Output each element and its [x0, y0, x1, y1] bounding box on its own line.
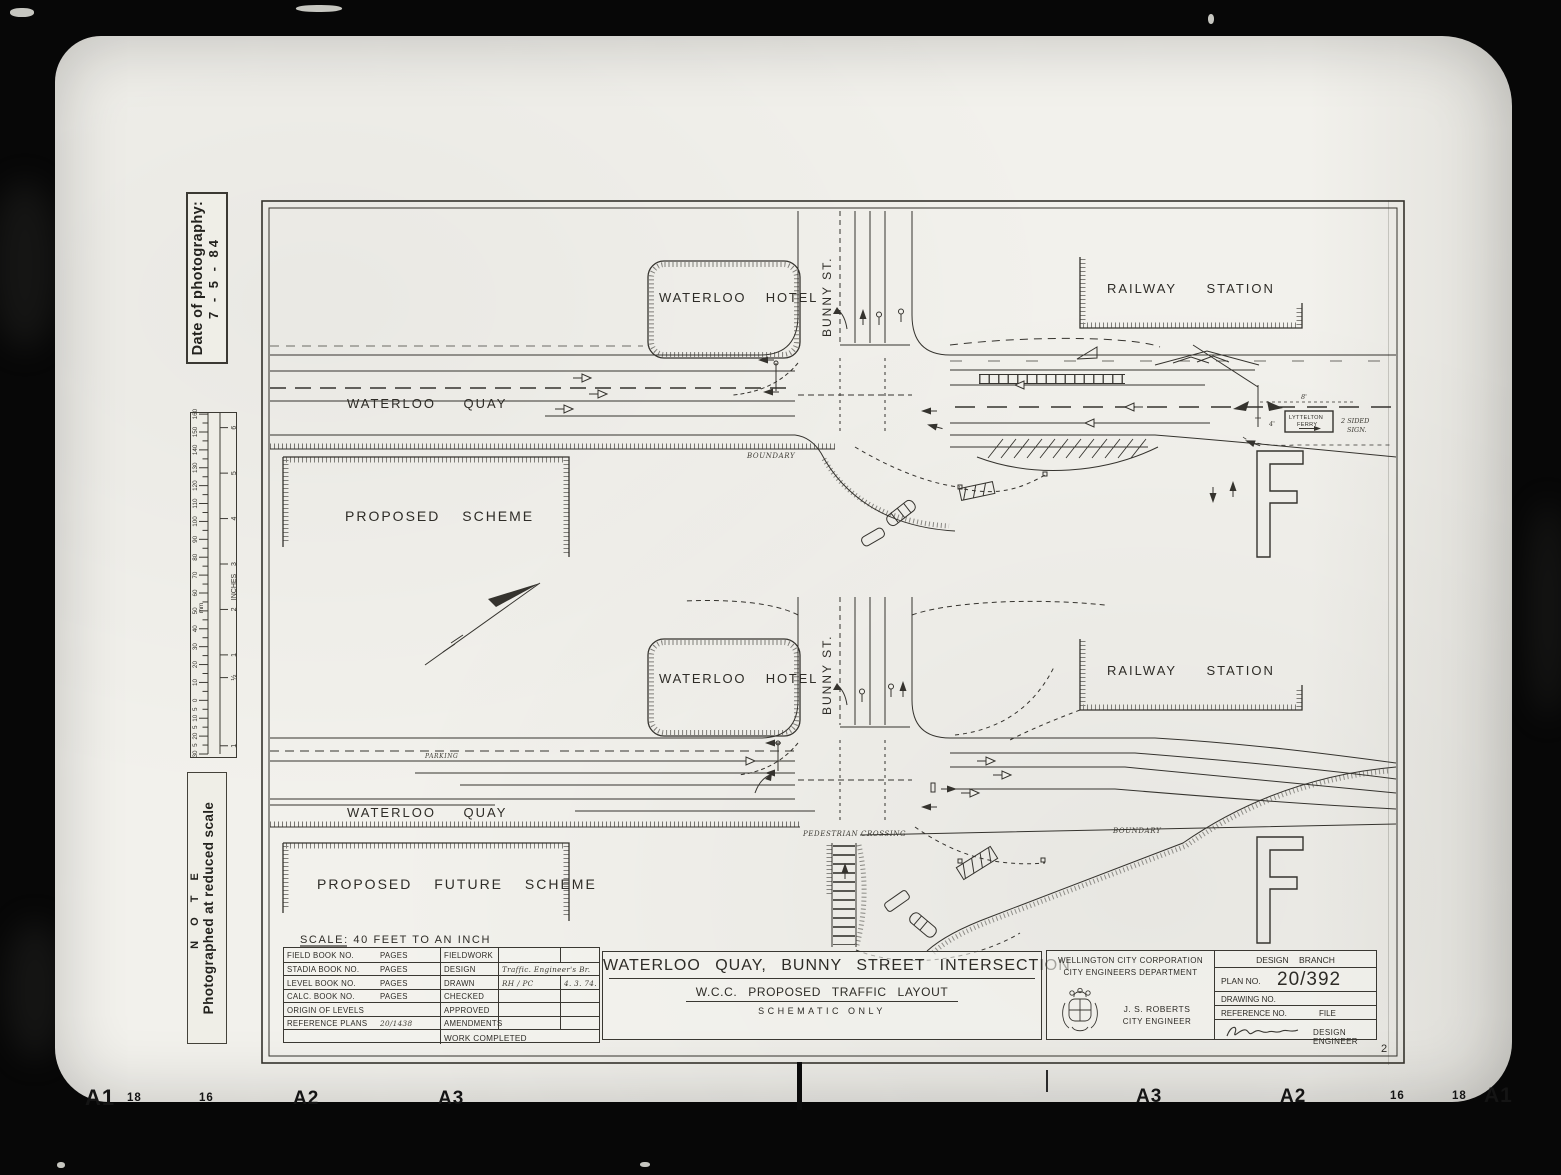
pages-label: PAGES: [380, 965, 408, 974]
cell-blank: [284, 1030, 441, 1044]
railway-station-label-bottom: RAILWAY STATION: [1107, 663, 1275, 678]
reduced-scale-note-stamp: N O T E Photographed at reduced scale: [187, 772, 227, 1044]
ruler-label: INCHES: [231, 573, 238, 600]
hotel-label-top: WATERLOO HOTEL: [659, 290, 818, 305]
cell-value: RH / PC: [499, 976, 561, 989]
work-completed-cell: WORK COMPLETED: [441, 1030, 599, 1044]
cell-role: FIELDWORK: [441, 948, 499, 962]
dimension-4ft: 4': [1268, 420, 1275, 428]
ruler-label: 2: [231, 607, 238, 611]
film-scratch: [640, 1162, 650, 1167]
ruler-label: 10: [192, 678, 199, 686]
registration-mark: [1046, 1070, 1048, 1092]
ferry-sign-line2: FERRY: [1297, 422, 1317, 428]
ruler-label: 1: [231, 744, 238, 748]
parking-label: PARKING: [424, 753, 458, 760]
row-label: ORIGIN OF LEVELS: [287, 1006, 364, 1015]
cell-value: [499, 1017, 561, 1030]
ferry-sign-line1: LYTTELTON: [1289, 415, 1323, 421]
table-row: LEVEL BOOK NO.PAGES DRAWN RH / PC 4. 3. …: [284, 975, 599, 989]
sign-note-line2: SIGN.: [1347, 426, 1367, 434]
pedestrian-crossing-label: PEDESTRIAN CROSSING: [802, 830, 906, 838]
row-label: LEVEL BOOK NO.: [287, 979, 356, 988]
ruler-label: 5: [231, 471, 238, 475]
plan-no-value: 20/392: [1277, 969, 1341, 991]
design-engineer-label: DESIGN ENGINEER: [1313, 1028, 1376, 1046]
title-rule: [609, 978, 1035, 979]
plan-number-cell: PLAN NO. 20/392: [1215, 968, 1376, 992]
bunny-st-label-top: BUNNY ST.: [820, 257, 834, 337]
ruler-label: 5: [192, 707, 199, 711]
ruler-label: 20: [192, 732, 199, 740]
pages-label: PAGES: [380, 992, 408, 1001]
ruler-label: 30: [192, 750, 199, 758]
frame-mark: A2: [1280, 1086, 1306, 1108]
cell-value2: [561, 1017, 599, 1030]
ruler-label: 160: [192, 408, 199, 419]
department-name: CITY ENGINEERS DEPARTMENT: [1047, 968, 1214, 977]
row-label: CALC. BOOK NO.: [287, 992, 355, 1001]
ruler-label: 70: [192, 571, 199, 579]
frame-mark: A3: [438, 1088, 464, 1110]
cell-value2: 4. 3. 74.: [561, 976, 599, 989]
reference-no-cell: REFERENCE NO. FILE: [1215, 1006, 1376, 1020]
reference-no-label: REFERENCE NO.: [1221, 1009, 1287, 1018]
subtitle-rule: [686, 1001, 958, 1002]
cell-role: AMENDMENTS: [441, 1017, 499, 1030]
ruler-label: mm: [198, 603, 205, 614]
authority-left-pane: WELLINGTON CITY CORPORATION CITY ENGINEE…: [1047, 951, 1215, 1039]
reduction-scale-ruler: 0102030405060708090100110120130140150160…: [189, 408, 239, 758]
reference-plans-value: 20/1438: [380, 1019, 412, 1028]
schematic-only-note: SCHEMATIC ONLY: [603, 1006, 1041, 1016]
hotel-label-bottom: WATERLOO HOTEL: [659, 671, 818, 686]
frame-mark: A1: [85, 1085, 115, 1111]
note-text: Photographed at reduced scale: [201, 773, 216, 1043]
cell-label: STADIA BOOK NO.PAGES: [284, 963, 441, 976]
titleblock-title-panel: WATERLOO QUAY, BUNNY STREET INTERSECTION…: [602, 951, 1042, 1040]
ruler-label: 0: [192, 698, 199, 702]
design-branch-cell: DESIGN BRANCH: [1215, 951, 1376, 968]
ruler-label: 90: [192, 535, 199, 543]
table-row: WORK COMPLETED: [284, 1029, 599, 1044]
ruler-label: 3: [231, 562, 238, 566]
table-row: ORIGIN OF LEVELS APPROVED: [284, 1002, 599, 1016]
cell-label: REFERENCE PLANS20/1438: [284, 1017, 441, 1030]
ruler-label: 120: [192, 480, 199, 491]
drawing-no-cell: DRAWING NO.: [1215, 992, 1376, 1006]
row-label: STADIA BOOK NO.: [287, 965, 359, 974]
ruler-label: 40: [192, 625, 199, 633]
titleblock-authority-panel: WELLINGTON CITY CORPORATION CITY ENGINEE…: [1046, 950, 1377, 1040]
waterloo-quay-label-top: WATERLOO QUAY: [347, 396, 507, 411]
plan-subtitle: W.C.C. PROPOSED TRAFFIC LAYOUT: [603, 985, 1041, 999]
film-smudge: [1528, 500, 1561, 720]
plan-no-label: PLAN NO.: [1221, 976, 1261, 986]
boundary-label-top: BOUNDARY: [746, 452, 796, 460]
north-arrow: [425, 583, 540, 665]
city-engineer-name: J. S. ROBERTS: [1105, 1004, 1209, 1014]
ruler-label: 6: [231, 426, 238, 430]
design-engineer-signature: [1223, 1022, 1307, 1040]
ruler-label: 1: [231, 653, 238, 657]
ruler-label: 20: [192, 661, 199, 669]
titleblock-record-table: FIELD BOOK NO.PAGES FIELDWORK STADIA BOO…: [283, 947, 600, 1043]
registration-mark: [797, 1062, 802, 1110]
frame-mark: A2: [293, 1088, 319, 1110]
table-row: FIELD BOOK NO.PAGES FIELDWORK: [284, 948, 599, 962]
pages-label: PAGES: [380, 951, 408, 960]
proposed-scheme-label: PROPOSED SCHEME: [345, 508, 534, 524]
cell-value2: [561, 948, 599, 962]
frame-mark: A3: [1136, 1086, 1162, 1108]
ruler-label: 110: [192, 498, 199, 509]
ruler-label: 30: [192, 643, 199, 651]
ruler-label: 60: [192, 589, 199, 597]
frame-mark: 16: [199, 1092, 214, 1104]
cell-label: LEVEL BOOK NO.PAGES: [284, 976, 441, 989]
ruler-label: 5: [192, 743, 199, 747]
table-row: STADIA BOOK NO.PAGES DESIGN Traffic. Eng…: [284, 962, 599, 976]
cell-label: CALC. BOOK NO.PAGES: [284, 990, 441, 1003]
date-value: 7 - 5 - 84: [206, 194, 221, 362]
ruler-label: 10: [192, 714, 199, 722]
ruler-label: ½: [230, 675, 238, 681]
film-smudge: [0, 180, 60, 350]
city-engineer-title: CITY ENGINEER: [1105, 1017, 1209, 1026]
file-label: FILE: [1319, 1009, 1336, 1018]
city-crest: [1060, 983, 1100, 1035]
scale-note: SCALE: 40 FEET TO AN INCH: [300, 934, 491, 946]
film-scratch: [1208, 14, 1214, 24]
cell-value: [499, 990, 561, 1003]
waterloo-quay-label-bottom: WATERLOO QUAY: [347, 805, 507, 820]
frame-mark: 18: [1452, 1090, 1467, 1102]
row-label: FIELD BOOK NO.: [287, 951, 354, 960]
ruler-label: 150: [192, 426, 199, 437]
bunny-st-label-bottom: BUNNY ST.: [820, 635, 834, 715]
cell-role: DESIGN: [441, 963, 499, 976]
cell-value: [499, 948, 561, 962]
date-label: Date of photography:: [190, 194, 206, 362]
cell-label: FIELD BOOK NO.PAGES: [284, 948, 441, 962]
ruler-label: 130: [192, 462, 199, 473]
microfilm-scan: { "film": { "bottom_marks": ["A1","18","…: [0, 0, 1561, 1175]
traffic-plan-drawing: LYTTELTON FERRY 2 SIDED SIGN. 8' 4' WATE…: [255, 195, 1410, 1070]
cell-value2: [561, 1003, 599, 1016]
sheet-number: 2: [1381, 1043, 1387, 1055]
date-of-photography-stamp: Date of photography: 7 - 5 - 84: [186, 192, 228, 364]
frame-mark: 16: [1390, 1090, 1405, 1102]
cell-value: [499, 1003, 561, 1016]
table-row: REFERENCE PLANS20/1438 AMENDMENTS: [284, 1016, 599, 1030]
organisation-name: WELLINGTON CITY CORPORATION: [1047, 956, 1214, 965]
sign-note-line1: 2 SIDED: [1340, 417, 1370, 425]
film-scratch: [10, 8, 34, 17]
plan-title: WATERLOO QUAY, BUNNY STREET INTERSECTION: [603, 957, 1041, 975]
cell-role: DRAWN: [441, 976, 499, 989]
row-label: REFERENCE PLANS: [287, 1019, 367, 1028]
railway-station-label-top: RAILWAY STATION: [1107, 281, 1275, 296]
cell-value2: [561, 990, 599, 1003]
pages-label: PAGES: [380, 979, 408, 988]
table-row: CALC. BOOK NO.PAGES CHECKED: [284, 989, 599, 1003]
frame-mark: 18: [127, 1092, 142, 1104]
boundary-label-bottom: BOUNDARY: [1112, 827, 1162, 835]
cell-role: APPROVED: [441, 1003, 499, 1016]
cell-role: CHECKED: [441, 990, 499, 1003]
signature-cell: DESIGN ENGINEER: [1215, 1020, 1376, 1041]
ruler-label: 80: [192, 553, 199, 561]
frame-mark: A1: [1484, 1084, 1513, 1108]
ruler-label: 5: [192, 725, 199, 729]
cell-label: ORIGIN OF LEVELS: [284, 1003, 441, 1016]
dimension-8ft: 8': [1301, 393, 1307, 401]
ruler-label: 140: [192, 444, 199, 455]
film-scratch: [57, 1162, 65, 1168]
ruler-label: 4: [231, 517, 238, 521]
note-title: N O T E: [189, 773, 201, 1043]
ruler-label: 100: [192, 516, 199, 527]
proposed-future-scheme-label: PROPOSED FUTURE SCHEME: [317, 876, 597, 892]
film-scratch: [296, 5, 342, 12]
cell-value: Traffic. Engineer's Br.: [499, 963, 599, 976]
ruler-graphic: 0102030405060708090100110120130140150160…: [189, 408, 239, 758]
